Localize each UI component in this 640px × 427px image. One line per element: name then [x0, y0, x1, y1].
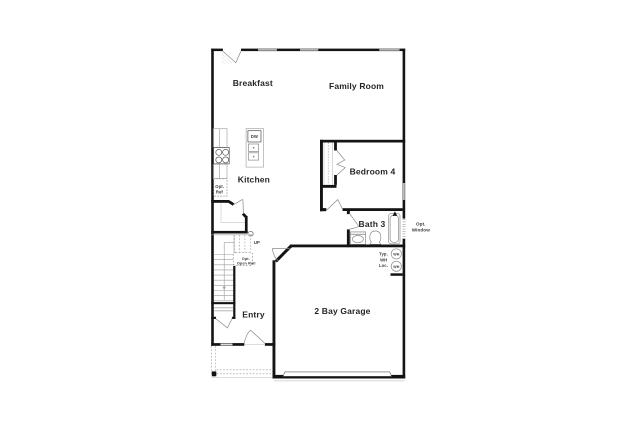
svg-text:DW: DW — [251, 134, 258, 139]
svg-text:Family Room: Family Room — [329, 81, 384, 91]
svg-text:Bath 3: Bath 3 — [359, 219, 386, 229]
svg-text:UP: UP — [254, 240, 260, 245]
svg-text:WH: WH — [393, 265, 399, 269]
svg-text:Window: Window — [412, 228, 430, 233]
svg-text:Kitchen: Kitchen — [238, 175, 270, 185]
svg-text:Entry: Entry — [242, 310, 265, 320]
svg-text:2 Bay Garage: 2 Bay Garage — [314, 306, 370, 316]
svg-text:WH: WH — [393, 252, 399, 256]
svg-text:WH: WH — [380, 258, 387, 263]
svg-text:Opt.: Opt. — [215, 184, 224, 189]
svg-text:Loc.: Loc. — [379, 263, 388, 268]
svg-text:Open Rail: Open Rail — [237, 262, 256, 266]
svg-text:Opt.: Opt. — [416, 222, 426, 227]
svg-text:Opt.: Opt. — [242, 257, 250, 261]
svg-text:Typ.: Typ. — [379, 251, 388, 256]
svg-text:Ref: Ref — [216, 190, 224, 195]
svg-text:Breakfast: Breakfast — [233, 78, 273, 88]
svg-text:Bedroom 4: Bedroom 4 — [350, 167, 396, 177]
